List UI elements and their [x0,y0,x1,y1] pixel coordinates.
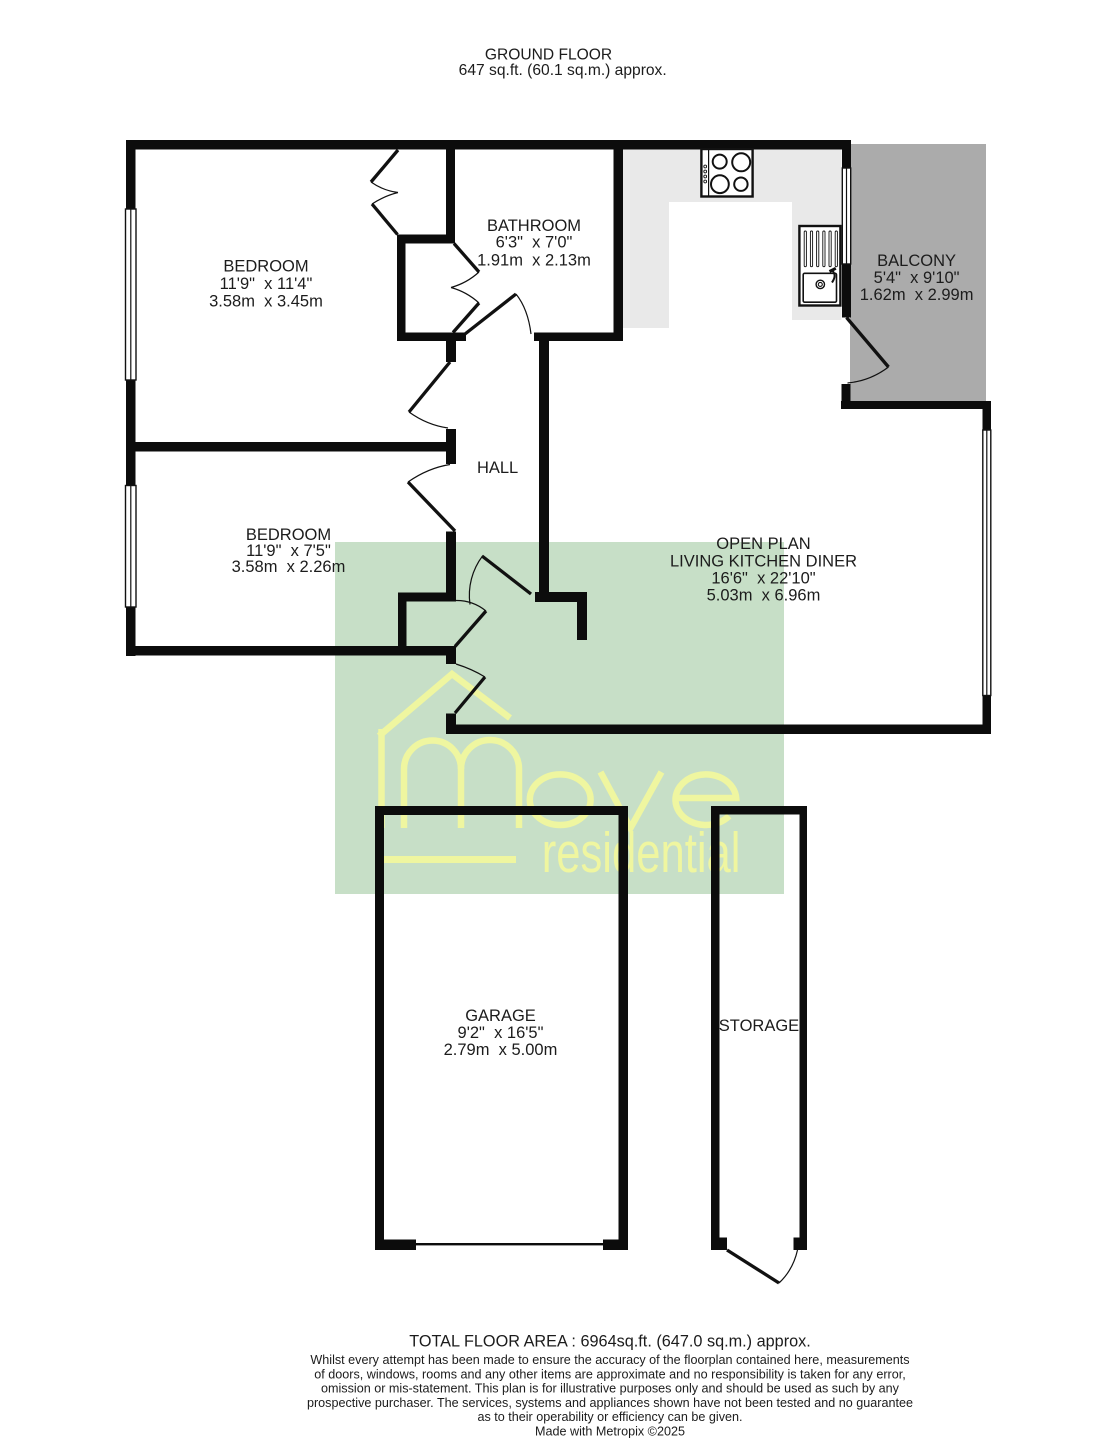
svg-text:BATHROOM: BATHROOM [487,217,581,235]
svg-text:1.62m x 2.99m: 1.62m x 2.99m [860,286,974,304]
svg-text:of doors, windows, rooms and a: of doors, windows, rooms and any other i… [314,1367,906,1381]
svg-text:1.91m x 2.13m: 1.91m x 2.13m [477,251,591,269]
svg-text:11'9" x 11'4": 11'9" x 11'4" [220,275,313,293]
svg-text:6'3" x 7'0": 6'3" x 7'0" [496,234,573,252]
svg-text:LIVING KITCHEN DINER: LIVING KITCHEN DINER [670,553,857,571]
svg-text:GROUND FLOOR: GROUND FLOOR [485,47,612,64]
svg-text:9'2" x 16'5": 9'2" x 16'5" [458,1024,544,1042]
svg-text:3.58m x 2.26m: 3.58m x 2.26m [232,558,346,576]
svg-text:Whilst every attempt has been: Whilst every attempt has been made to en… [310,1353,909,1367]
svg-text:Made with Metropix ©2025: Made with Metropix ©2025 [535,1425,685,1439]
svg-text:STORAGE: STORAGE [719,1017,799,1035]
svg-text:2.79m x 5.00m: 2.79m x 5.00m [444,1041,558,1059]
svg-text:GARAGE: GARAGE [465,1007,536,1025]
svg-text:16'6" x 22'10": 16'6" x 22'10" [711,570,815,588]
svg-text:OPEN PLAN: OPEN PLAN [716,535,810,553]
svg-text:TOTAL FLOOR AREA : 6964sq.ft.: TOTAL FLOOR AREA : 6964sq.ft. (647.0 sq.… [409,1332,811,1350]
svg-text:BALCONY: BALCONY [877,252,956,270]
svg-text:BEDROOM: BEDROOM [223,258,308,276]
svg-text:5.03m x 6.96m: 5.03m x 6.96m [707,587,821,605]
svg-text:prospective purchaser. The ser: prospective purchaser. The services, sys… [307,1396,913,1410]
svg-text:residential: residential [542,820,741,884]
svg-text:omission or mis-statement. Thi: omission or mis-statement. This plan is … [321,1382,900,1396]
svg-text:647 sq.ft. (60.1 sq.m.) approx: 647 sq.ft. (60.1 sq.m.) approx. [459,62,667,79]
svg-text:5'4" x 9'10": 5'4" x 9'10" [874,269,960,287]
svg-text:HALL: HALL [477,459,518,477]
svg-text:as to their operability or eff: as to their operability or efficiency ca… [477,1410,742,1424]
svg-text:3.58m x 3.45m: 3.58m x 3.45m [209,293,323,311]
